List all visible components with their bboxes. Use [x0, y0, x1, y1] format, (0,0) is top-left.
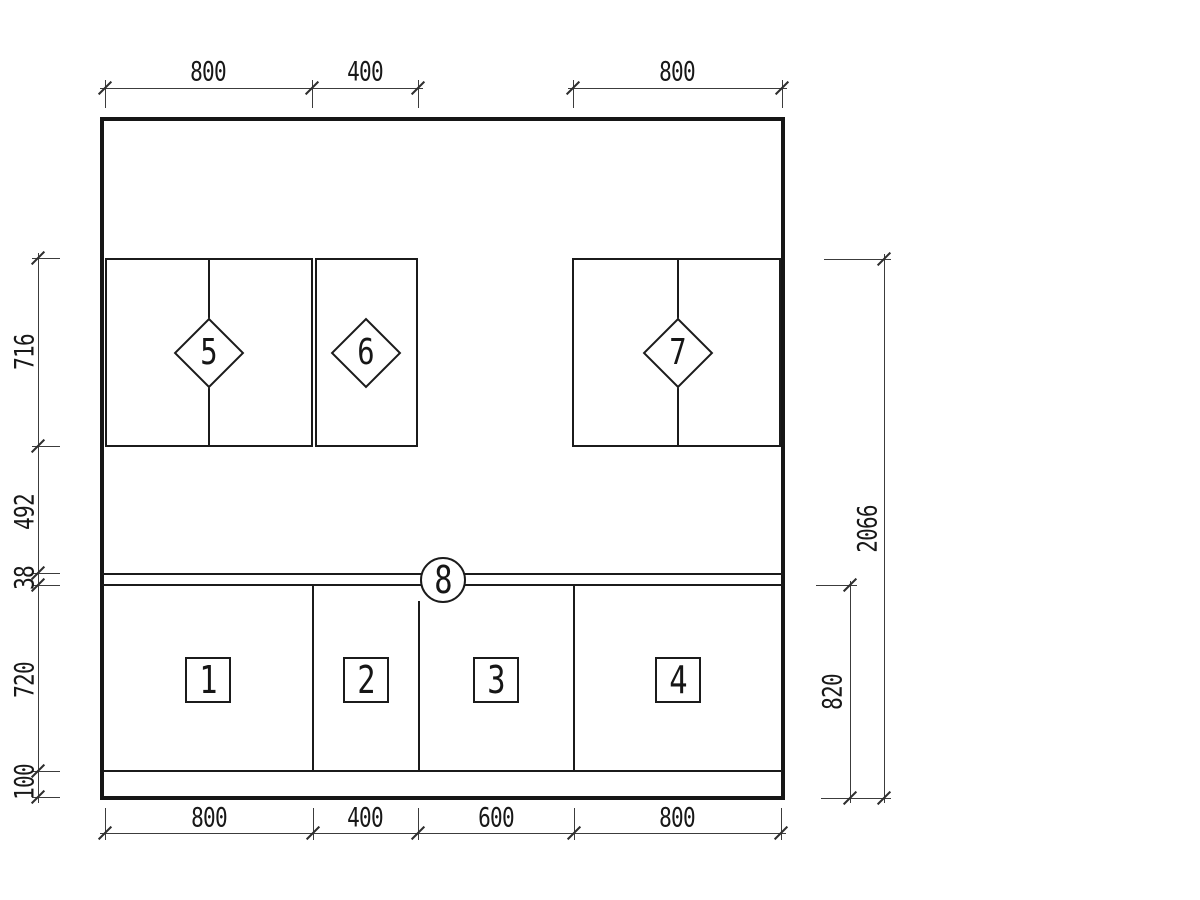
dim-label-top-400: 400 — [347, 57, 383, 88]
extension-line — [781, 808, 782, 840]
base-divider-3 — [573, 586, 575, 771]
dim-label-top-800-right: 800 — [659, 57, 695, 88]
marker-square-3: 3 — [473, 657, 519, 703]
marker-square-2-label: 2 — [357, 661, 375, 699]
marker-square-1-label: 1 — [199, 661, 217, 699]
door-divider-right-bottom — [677, 385, 679, 446]
dim-line-right-2066 — [884, 254, 885, 803]
marker-diamond-5-label: 5 — [200, 335, 217, 371]
dim-label-bottom-400: 400 — [347, 803, 383, 834]
dim-line-top-left-segment — [100, 88, 423, 89]
dim-label-bottom-800-right: 800 — [659, 803, 695, 834]
drawing-canvas: 5 6 7 1 2 3 4 8 800 400 800 — [0, 0, 1200, 900]
door-divider-left-top — [208, 260, 210, 322]
plinth-line — [104, 770, 782, 772]
dim-label-bottom-800-left: 800 — [191, 803, 227, 834]
dim-label-top-800-left: 800 — [190, 57, 226, 88]
dim-label-left-492: 492 — [10, 494, 41, 530]
marker-circle-8: 8 — [420, 557, 466, 603]
dim-label-left-716: 716 — [10, 334, 41, 370]
base-divider-2 — [418, 601, 420, 771]
marker-diamond-6-label: 6 — [357, 335, 374, 371]
dim-label-right-2066: 2066 — [853, 505, 884, 553]
dim-label-left-100: 100 — [10, 764, 41, 800]
marker-circle-8-label: 8 — [434, 561, 452, 599]
marker-square-4: 4 — [655, 657, 701, 703]
marker-diamond-7-label: 7 — [669, 335, 686, 371]
extension-line — [574, 808, 575, 840]
base-divider-1 — [312, 586, 314, 771]
dim-line-right-820 — [850, 581, 851, 803]
marker-square-2: 2 — [343, 657, 389, 703]
dim-label-right-820: 820 — [818, 674, 849, 710]
dim-label-left-38: 38 — [10, 566, 41, 590]
dim-label-bottom-600: 600 — [478, 803, 514, 834]
marker-square-4-label: 4 — [669, 661, 687, 699]
extension-line — [105, 808, 106, 840]
door-divider-left-bottom — [208, 385, 210, 446]
marker-square-1: 1 — [185, 657, 231, 703]
dim-label-left-720: 720 — [10, 662, 41, 698]
extension-line — [313, 808, 314, 840]
door-divider-right-top — [677, 260, 679, 322]
dim-line-top-right-segment — [568, 88, 787, 89]
marker-square-3-label: 3 — [487, 661, 505, 699]
extension-line — [418, 808, 419, 840]
